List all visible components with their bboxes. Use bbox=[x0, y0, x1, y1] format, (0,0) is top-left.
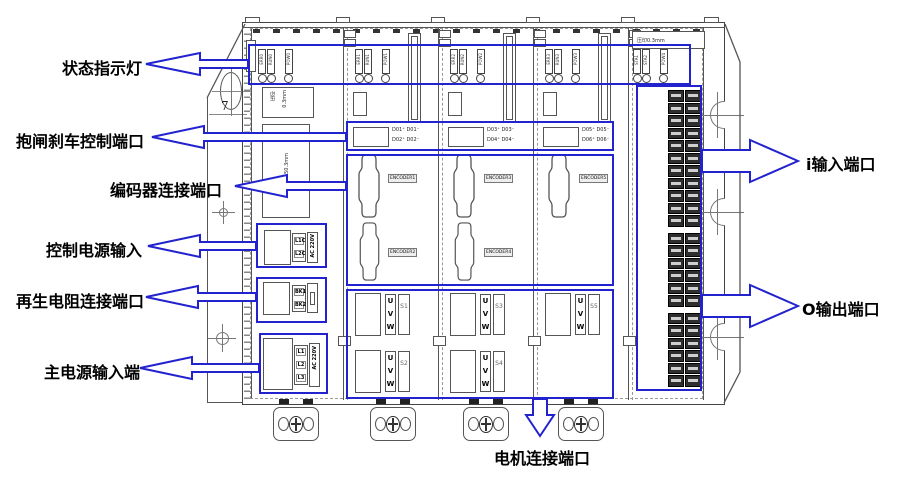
arrow-regen-port bbox=[146, 286, 256, 308]
top-tab bbox=[704, 17, 719, 23]
slot-centerline-v bbox=[231, 64, 232, 116]
left-bracket-edge bbox=[207, 98, 208, 403]
top-tab bbox=[621, 17, 635, 23]
bottom-clip bbox=[303, 399, 313, 404]
axis-top-block bbox=[543, 92, 557, 116]
connector-pin bbox=[278, 417, 289, 431]
label-regen-port: 再生电阻连接端口 bbox=[16, 288, 144, 312]
right-bracket-outline bbox=[724, 24, 740, 403]
label-main-power: 主电源输入端 bbox=[44, 359, 140, 383]
bottom-motor-connector bbox=[558, 407, 604, 441]
top-tab bbox=[431, 17, 445, 23]
separator-clip-mid bbox=[623, 336, 636, 346]
highlight-io-terminals bbox=[636, 85, 702, 391]
bracket-crosshair-v bbox=[717, 92, 718, 138]
highlight-brake-ports bbox=[346, 121, 614, 151]
bottom-clip bbox=[564, 399, 574, 404]
bracket-crosshair-h bbox=[702, 337, 744, 338]
top-tab bbox=[336, 17, 350, 23]
crosshair-1-circle bbox=[219, 208, 228, 217]
bracket-crosshair-h bbox=[702, 115, 744, 116]
imprint-text: 0.3mm bbox=[281, 90, 290, 108]
top-tab bbox=[526, 17, 540, 23]
highlight-status-leds bbox=[248, 44, 691, 85]
dimension-7: 7 bbox=[221, 99, 229, 113]
bottom-clip bbox=[279, 399, 289, 404]
label-motor-port: 电机连接端口 bbox=[494, 445, 590, 469]
left-bracket-bottom bbox=[207, 402, 243, 403]
connector-pin bbox=[493, 417, 504, 431]
highlight-encoder-ports bbox=[346, 154, 614, 286]
arrow-control-power bbox=[148, 235, 256, 257]
highlight-regen-port bbox=[256, 277, 327, 323]
top-tab bbox=[245, 17, 260, 23]
separator-clip bbox=[439, 30, 451, 38]
connector-pin bbox=[375, 417, 386, 431]
bracket-crosshair-h bbox=[702, 212, 744, 213]
bottom-clip bbox=[588, 399, 598, 404]
power-module-imprint-box: 压印 0.3mm bbox=[262, 87, 314, 118]
connector-pin bbox=[468, 417, 479, 431]
connector-pin bbox=[563, 417, 574, 431]
bottom-clip bbox=[493, 399, 503, 404]
connector-screw bbox=[386, 416, 400, 433]
label-encoder-port: 编码器连接端口 bbox=[110, 177, 222, 201]
separator-clip bbox=[344, 30, 356, 38]
bracket-crosshair-v bbox=[717, 189, 718, 235]
connector-pin bbox=[588, 417, 599, 431]
connector-screw bbox=[479, 416, 493, 433]
bottom-motor-connector bbox=[273, 407, 319, 441]
label-output-port: O输出端口 bbox=[802, 296, 880, 320]
bottom-clip bbox=[400, 399, 410, 404]
bracket-crosshair-v bbox=[717, 314, 718, 360]
label-control-power: 控制电源输入 bbox=[46, 237, 142, 261]
highlight-main-power bbox=[259, 333, 328, 394]
label-input-port: i输入端口 bbox=[806, 151, 876, 175]
axis-top-block bbox=[353, 92, 367, 116]
height-mark-text: H150.3mm bbox=[283, 153, 292, 181]
connector-screw bbox=[574, 416, 588, 433]
io-plate-line bbox=[703, 28, 704, 400]
bottom-motor-connector bbox=[463, 407, 509, 441]
imprint-text: 压印 bbox=[269, 91, 278, 101]
bottom-clip bbox=[376, 399, 386, 404]
connector-pin bbox=[400, 417, 411, 431]
power-module-body-box: H150.3mm bbox=[262, 124, 310, 218]
connector-screw bbox=[289, 416, 303, 433]
separator-clip bbox=[534, 30, 546, 38]
connector-pin bbox=[303, 417, 314, 431]
bottom-motor-connector bbox=[370, 407, 416, 441]
label-status-leds: 状态指示灯 bbox=[62, 55, 142, 79]
bottom-clip bbox=[469, 399, 479, 404]
highlight-control-power bbox=[256, 223, 327, 268]
highlight-motor-ports bbox=[346, 289, 614, 399]
servo-drive-diagram: 7 ERR0 RUN0 POW0 bbox=[0, 0, 900, 487]
label-brake-port: 抱闸刹车控制端口 bbox=[16, 128, 144, 152]
crosshair-2-circle bbox=[216, 332, 229, 345]
axis-top-block bbox=[448, 92, 462, 116]
